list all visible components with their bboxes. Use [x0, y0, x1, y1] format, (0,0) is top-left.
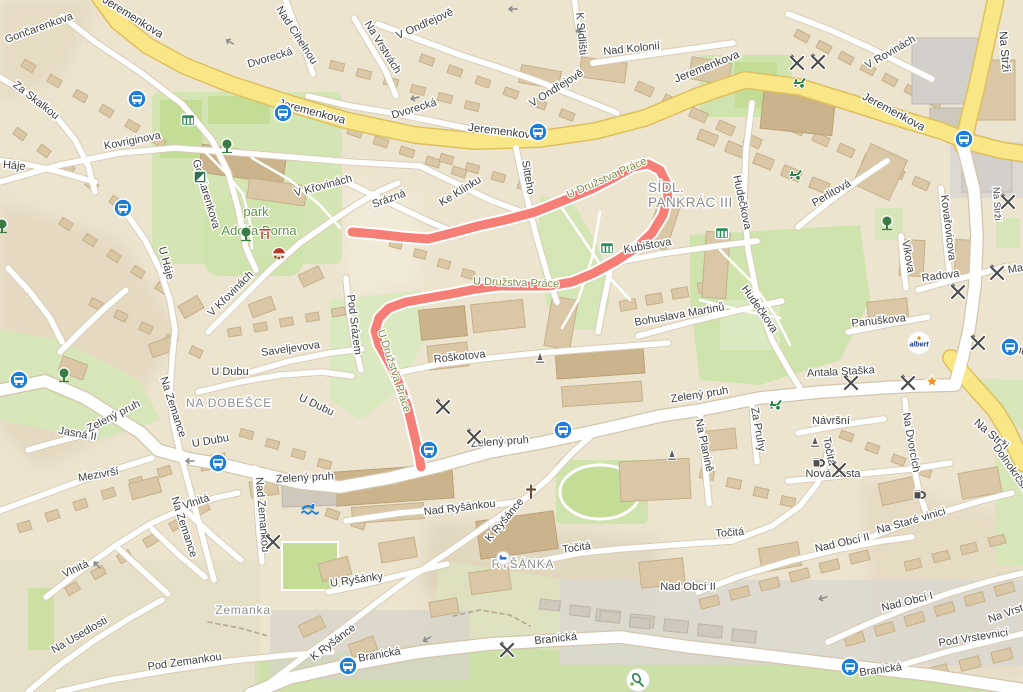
park-label: park: [243, 204, 269, 219]
building: [645, 293, 662, 306]
building: [419, 306, 468, 341]
hotel-icon[interactable]: [497, 552, 510, 565]
bus-icon[interactable]: [841, 658, 859, 676]
building: [619, 458, 691, 502]
bus-icon[interactable]: [554, 421, 572, 439]
theater-icon[interactable]: [273, 248, 286, 260]
street-label: Ma: [1007, 262, 1023, 277]
bus-icon[interactable]: [339, 657, 357, 675]
building: [471, 299, 526, 332]
bus-icon[interactable]: [529, 123, 547, 141]
area-label: SÍDL.: [648, 180, 684, 195]
building: [600, 611, 621, 623]
school-icon[interactable]: [182, 115, 195, 126]
bus-icon[interactable]: [128, 90, 146, 108]
bus-icon[interactable]: [955, 130, 973, 148]
building: [540, 599, 561, 611]
bus-icon[interactable]: [10, 371, 28, 389]
bus-icon[interactable]: [420, 441, 438, 459]
building: [697, 624, 722, 638]
school-icon[interactable]: [716, 228, 729, 239]
street-label: U Dubu: [211, 366, 248, 378]
school-icon[interactable]: [601, 243, 614, 254]
building: [331, 307, 345, 317]
bus-icon[interactable]: [114, 199, 132, 217]
bus-icon[interactable]: [274, 104, 292, 122]
gallery-icon[interactable]: [194, 171, 206, 183]
building: [619, 299, 636, 312]
building: [663, 619, 688, 633]
building: [630, 617, 651, 629]
street-label: Točitá: [715, 526, 745, 540]
building: [305, 312, 319, 322]
building: [253, 322, 267, 332]
tennis-icon[interactable]: [627, 669, 650, 692]
building: [227, 327, 241, 337]
building: [671, 287, 688, 300]
street-label: Na Strži: [990, 187, 1003, 221]
street-label: Háje: [2, 159, 26, 173]
bus-icon[interactable]: [1001, 338, 1019, 356]
area-label: PANKRÁC III: [648, 195, 733, 210]
area-label: NA DOBEŠCE: [186, 395, 272, 410]
building: [570, 605, 591, 617]
albert-icon[interactable]: albert: [908, 332, 931, 355]
building: [279, 317, 293, 327]
building: [731, 629, 756, 643]
street-label: Návršní: [812, 415, 850, 427]
area-label: Zemanka: [215, 603, 271, 617]
svg-text:albert: albert: [909, 342, 929, 349]
bus-icon[interactable]: [209, 454, 227, 472]
map-view[interactable]: JeremenkovaJeremenkovaJeremenkovaJeremen…: [0, 0, 1023, 692]
map-svg[interactable]: JeremenkovaJeremenkovaJeremenkovaJeremen…: [0, 0, 1023, 692]
street-label: Nad Obcí II: [660, 581, 716, 593]
